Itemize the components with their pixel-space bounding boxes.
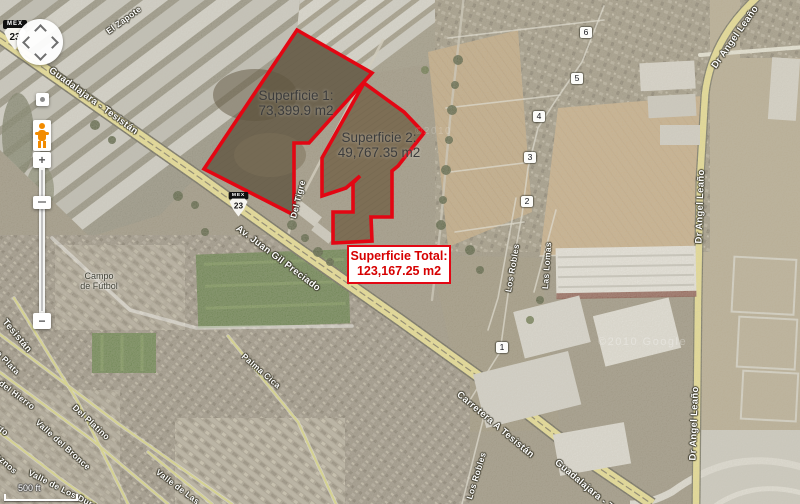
street-marker-6: 6 bbox=[580, 27, 592, 38]
zoom-out-button[interactable]: − bbox=[33, 313, 51, 329]
street-view-pegman-button[interactable] bbox=[33, 120, 51, 151]
pegman-icon bbox=[39, 123, 45, 129]
total-area: 123,167.25 m2 bbox=[349, 264, 449, 279]
pan-left-icon[interactable] bbox=[22, 36, 35, 49]
street-marker-3: 3 bbox=[524, 152, 536, 163]
pan-control[interactable] bbox=[17, 19, 63, 65]
scale-rule bbox=[4, 494, 78, 501]
shield-banner: MEX bbox=[229, 192, 249, 199]
parcel-2-area: 49,767.35 m2 bbox=[317, 145, 441, 160]
zoom-slider-track[interactable] bbox=[39, 168, 45, 313]
map-viewport[interactable]: Guadalajara - Tesistán Av. Juan Gil Prec… bbox=[0, 0, 800, 504]
recenter-button[interactable] bbox=[36, 93, 49, 106]
street-marker-5: 5 bbox=[571, 73, 583, 84]
pan-down-icon[interactable] bbox=[34, 48, 47, 61]
zoom-slider-handle[interactable] bbox=[33, 196, 51, 209]
pan-up-icon[interactable] bbox=[34, 24, 47, 37]
zoom-in-button[interactable]: + bbox=[33, 152, 51, 168]
scale-bar: 500 ft bbox=[4, 483, 78, 501]
total-title: Superficie Total: bbox=[349, 249, 449, 264]
street-marker-2: 2 bbox=[521, 196, 533, 207]
parcel-1-label: Superficie 1: 73,399.9 m2 bbox=[236, 88, 356, 118]
scale-label: 500 ft bbox=[18, 483, 78, 493]
street-marker-1: 1 bbox=[496, 342, 508, 353]
pan-right-icon[interactable] bbox=[46, 36, 59, 49]
parcel-total-callout: Superficie Total: 123,167.25 m2 bbox=[347, 245, 451, 284]
parcel-1-title: Superficie 1: bbox=[236, 88, 356, 103]
parcel-1-area: 73,399.9 m2 bbox=[236, 103, 356, 118]
poi-label-campo-de-futbol: Campo de Fútbol bbox=[74, 271, 124, 291]
street-marker-4: 4 bbox=[533, 111, 545, 122]
highway-shield-mex-23-road: MEX 23 bbox=[227, 192, 250, 217]
imagery-attribution: ©2010 Google bbox=[598, 336, 687, 348]
shield-route-number: 23 bbox=[229, 199, 247, 217]
imagery-attribution-small: ©2010 bbox=[415, 126, 452, 137]
